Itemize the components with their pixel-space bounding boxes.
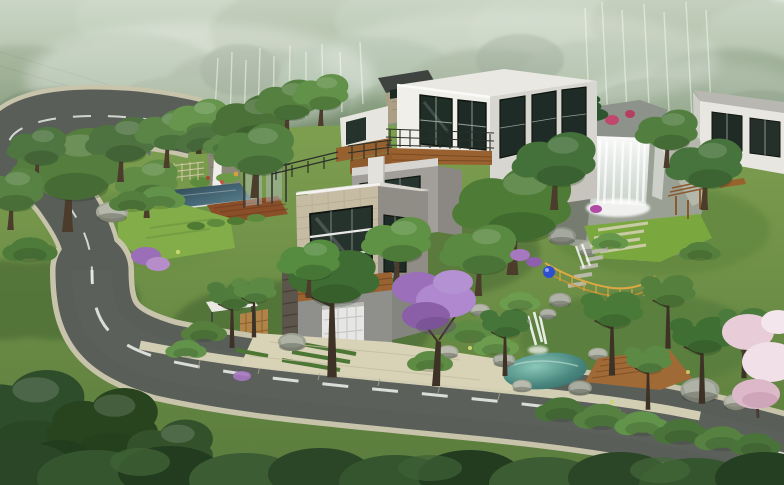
villa-landscape-rendering: Aerial rendering of a modern hillside vi… <box>0 0 784 485</box>
blue-garden-ball <box>543 266 555 278</box>
